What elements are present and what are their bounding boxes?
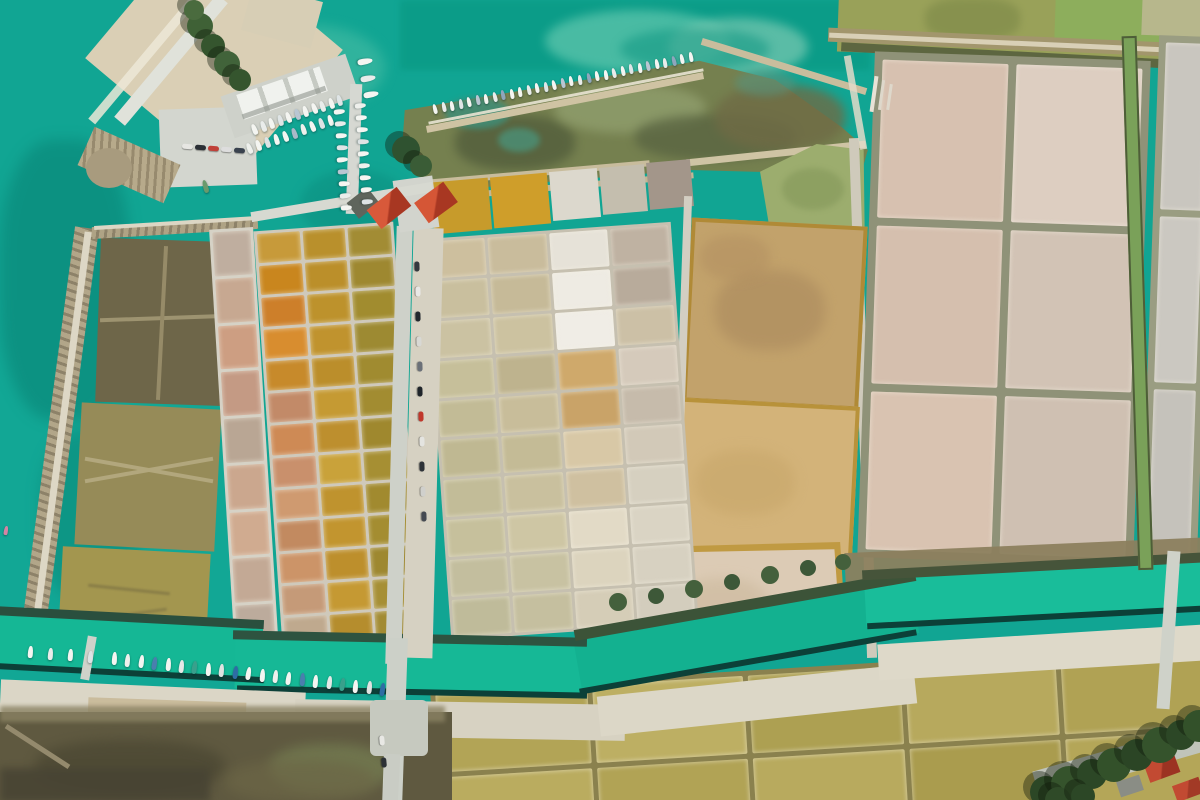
canal-moored-boats-5	[165, 658, 171, 671]
central-pale-pond-grid-pond-r3c2	[493, 313, 554, 354]
central-pale-pond-grid-pond-r2c2	[490, 273, 551, 314]
pink-crystallizer-grid-pond-r3c2	[999, 396, 1130, 558]
east-edge-pond-strip-pond-r3c1	[1148, 390, 1196, 558]
canal-moored-boats-1	[112, 652, 118, 665]
orange-pond-grid-pond-r8c2	[318, 452, 363, 484]
orange-pond-grid-pond-r7c2	[316, 420, 361, 452]
orange-pond-grid-pond-r2c2	[305, 260, 350, 292]
canal-moored-boats-west-2	[47, 648, 53, 660]
canal-moored-boats-8	[205, 663, 211, 676]
central-pale-pond-grid-pond-r4c4	[618, 344, 679, 385]
orange-pond-grid-pond-r12c1	[281, 583, 326, 615]
central-pale-pond-grid-pond-r2c4	[613, 265, 674, 306]
bridge-road-cars-1	[379, 735, 385, 745]
pink-pond-column-pond-r4c1	[221, 370, 262, 416]
bridge-south-apron	[370, 700, 428, 756]
roadside-parked-cars-10	[420, 486, 425, 496]
roadside-parked-cars-11	[421, 511, 426, 521]
orange-pond-grid-pond-r4c1	[263, 327, 308, 359]
roadside-parked-cars-2	[415, 286, 420, 296]
pink-crystallizer-grid-pond-r1c1	[877, 60, 1008, 222]
east-edge-pond-strip-pond-r2c1	[1154, 216, 1200, 384]
orange-pond-grid-pond-r10c2	[322, 516, 367, 548]
canal-bank-shrub	[685, 580, 703, 598]
central-pale-pond-grid-pond-r1c2	[488, 234, 549, 275]
breakwater-mound	[86, 148, 132, 188]
golden-pond-upper-mottle	[715, 270, 825, 350]
marsh-tidal-pool-2	[498, 128, 540, 152]
central-pale-pond-grid-pond-r2c3	[551, 269, 612, 310]
pink-crystallizer-grid-pond-r3c1	[866, 391, 997, 553]
pink-crystallizer-grid-pond-r2c2	[1005, 230, 1136, 392]
roadside-parked-cars-9	[420, 461, 425, 471]
orange-pond-grid-pond-r1c3	[348, 225, 393, 257]
central-pale-pond-grid	[423, 222, 698, 640]
marsh-brown-blob	[715, 85, 845, 150]
quay-parked-cars-3	[208, 145, 219, 151]
orange-pond-grid-pond-r6c1	[268, 391, 313, 423]
orange-pond-grid-pond-r11c2	[325, 548, 370, 580]
orange-pond-grid-pond-r2c1	[259, 263, 304, 295]
central-pale-pond-grid-pond-r7c1	[443, 477, 504, 518]
roadside-parked-cars-1	[414, 261, 419, 271]
golden-pond-upper-mottle-2	[700, 235, 770, 280]
roadside-parked-cars-5	[417, 361, 422, 371]
orange-pond-grid-pond-r12c2	[327, 580, 372, 612]
building-tree	[410, 155, 432, 177]
east-edge-pond-strip-pond-r1c1	[1160, 42, 1200, 210]
central-pale-pond-grid-pond-r8c1	[446, 516, 507, 557]
canal-bank-shrub	[724, 574, 740, 590]
canal-bank-shrub	[609, 593, 627, 611]
pink-pond-column-pond-r6c1	[227, 464, 268, 510]
pink-crystallizer-grid-pond-r2c1	[871, 226, 1002, 388]
jetty-east-boats-4	[357, 139, 368, 144]
jetty-east-boats-6	[359, 163, 370, 168]
cape-tree	[229, 69, 251, 91]
pink-pond-column-pond-r2c1	[215, 277, 256, 323]
central-pale-pond-grid-pond-r9c4	[632, 543, 693, 584]
central-pale-pond-grid-pond-r3c3	[554, 309, 615, 350]
south-khaki-pond-grid-pond-r2c3	[753, 749, 909, 800]
pale-pond-top-corner	[1141, 0, 1200, 37]
orange-pond-grid-pond-r9c1	[275, 487, 320, 519]
central-pale-pond-grid-pond-r6c3	[563, 428, 624, 469]
orange-pond-grid-pond-r6c2	[313, 388, 358, 420]
orange-pond-grid-pond-r11c1	[279, 551, 324, 583]
central-pale-pond-grid-pond-r7c4	[626, 464, 687, 505]
orange-pond-grid-pond-r8c1	[272, 455, 317, 487]
quay-parked-cars-4	[221, 146, 232, 152]
bridge-road-cars-2	[381, 757, 387, 767]
golden-pond-middle-mottle	[695, 450, 795, 515]
central-pale-pond-grid-pond-r4c3	[557, 349, 618, 390]
marsh-tidal-pool-3	[735, 70, 795, 96]
central-pale-pond-grid-pond-r6c4	[624, 424, 685, 465]
central-pale-pond-grid-pond-r5c4	[621, 384, 682, 425]
jetty-west-boats-4	[336, 145, 347, 150]
central-pale-pond-grid-pond-r4c1	[435, 357, 496, 398]
roadside-parked-cars-7	[418, 411, 423, 421]
orange-pond-grid-pond-r7c1	[270, 423, 315, 455]
white-pond-top	[549, 168, 601, 221]
jetty-east-boats-7	[360, 175, 371, 180]
orange-pond-grid-pond-r10c1	[277, 519, 322, 551]
jetty-west-boats-9	[340, 205, 351, 210]
jetty-west-boats-6	[338, 169, 349, 174]
roadside-parked-cars-8	[419, 436, 424, 446]
canal-moored-boats-15	[299, 673, 305, 686]
gold-pond-b	[490, 173, 551, 229]
jetty-west-boats-7	[339, 181, 350, 186]
central-pale-pond-grid-pond-r10c1	[452, 596, 513, 637]
cape-bush	[184, 0, 204, 20]
central-pale-pond-grid-pond-r9c2	[510, 552, 571, 593]
pink-crystallizer-grid	[857, 51, 1150, 566]
canal-bank-shrub	[648, 588, 664, 604]
pink-pond-column-pond-r3c1	[218, 324, 259, 370]
jetty-east-boats-9	[361, 199, 372, 204]
orange-pond-grid-pond-r2c3	[350, 257, 395, 289]
south-marsh-corner-dark	[0, 768, 210, 800]
roadside-parked-cars-4	[416, 336, 421, 346]
roadside-parked-cars-6	[418, 386, 423, 396]
central-pale-pond-grid-pond-r5c3	[560, 388, 621, 429]
orange-pond-grid-pond-r3c3	[352, 289, 397, 321]
south-khaki-pond-grid-pond-r2c2	[597, 758, 753, 800]
canal-moored-boats-west-4	[87, 651, 93, 663]
south-marsh-mid-blob	[225, 760, 375, 800]
orange-pond-grid-pond-r9c2	[320, 484, 365, 516]
quay-parked-cars-1	[182, 144, 193, 150]
orange-pond-grid-pond-r4c2	[309, 324, 354, 356]
orange-pond-grid-pond-r3c1	[261, 295, 306, 327]
canal-bank-shrub	[761, 566, 779, 584]
orange-pond-grid-pond-r5c2	[311, 356, 356, 388]
canal-moored-boats-west-3	[67, 649, 73, 661]
orange-pond-grid-pond-r1c2	[302, 228, 347, 260]
quay-parked-cars-2	[195, 145, 206, 151]
orange-pond-grid-pond-r1c1	[257, 231, 302, 263]
central-pale-pond-grid-pond-r7c2	[504, 472, 565, 513]
roadside-parked-cars-3	[416, 311, 421, 321]
pink-pond-column-pond-r1c1	[212, 230, 253, 276]
canal-bank-shrub	[835, 554, 851, 570]
pink-pond-column-pond-r7c1	[229, 510, 270, 556]
pink-pond-column-pond-r8c1	[232, 557, 273, 603]
jetty-west-boats-3	[335, 133, 346, 138]
central-pale-pond-grid-pond-r9c1	[449, 556, 510, 597]
central-pale-pond-grid-pond-r3c1	[432, 317, 493, 358]
central-pale-pond-grid-pond-r10c2	[513, 592, 574, 633]
central-pale-pond-grid-pond-r5c2	[499, 393, 560, 434]
green-triangle-pond-inner	[782, 168, 844, 210]
central-pale-pond-grid-pond-r1c4	[610, 225, 671, 266]
central-pale-pond-grid-pond-r4c2	[496, 353, 557, 394]
orange-pond-grid-pond-r3c2	[307, 292, 352, 324]
central-pale-pond-grid-pond-r5c1	[438, 397, 499, 438]
aerial-photo-salt-pans-marina	[0, 0, 1200, 800]
central-pale-pond-grid-pond-r6c2	[501, 433, 562, 474]
orange-pond-grid-pond-r4c3	[355, 321, 400, 353]
central-pale-pond-grid-pond-r8c3	[568, 508, 629, 549]
south-khaki-pond-grid-pond-r2c1	[440, 768, 596, 800]
jetty-east-boats-3	[356, 127, 367, 132]
quay-parked-cars-5	[234, 147, 245, 153]
canal-bank-shrub	[800, 560, 816, 576]
central-pale-pond-grid-pond-r7c3	[565, 468, 626, 509]
central-pale-pond-grid-pond-r3c4	[615, 305, 676, 346]
central-pale-pond-grid-pond-r8c4	[629, 504, 690, 545]
central-pale-pond-grid-pond-r8c2	[507, 512, 568, 553]
orange-pond-grid-pond-r5c1	[266, 359, 311, 391]
grey-pond-top	[599, 164, 648, 215]
pink-pond-column-pond-r5c1	[224, 417, 265, 463]
canal-moored-boats-12	[259, 669, 265, 682]
central-pale-pond-grid-pond-r6c1	[440, 437, 501, 478]
central-pale-pond-grid-pond-r1c3	[549, 229, 610, 270]
central-pale-pond-grid-pond-r9c3	[571, 548, 632, 589]
